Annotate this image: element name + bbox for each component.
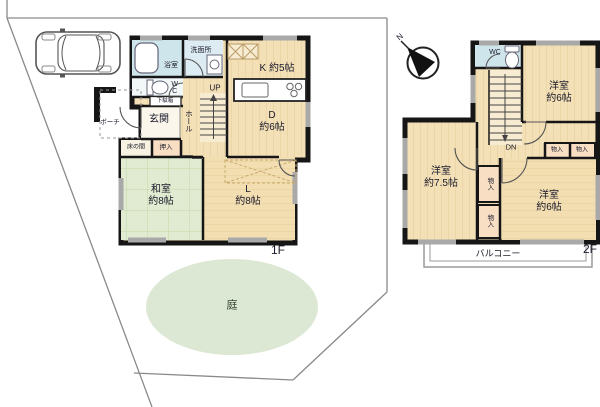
floor1-plan: [94, 36, 311, 244]
washing-machine: [207, 55, 222, 74]
room-tokonoma: [121, 140, 152, 157]
room-oshiire: [152, 140, 181, 157]
garden: [146, 259, 318, 355]
floorplan-drawing: [0, 0, 600, 407]
floorplan-page: 浴室 洗面所 WC 下駄箱 玄関 ホール UP K 約5帖 D 約6帖 押入 床…: [0, 0, 600, 407]
room-washitsu: [121, 157, 203, 240]
kitchen-hanging-cabinet: [228, 44, 258, 59]
kitchen-counter: [234, 79, 306, 101]
toilet-2f: [505, 46, 519, 68]
toilet-1f: [147, 80, 168, 95]
balcony: [424, 242, 592, 267]
bathtub: [135, 43, 158, 73]
room-entrance: [141, 106, 180, 138]
car: [36, 29, 120, 78]
north-compass: [401, 41, 439, 79]
shoe-cabinet-box: [150, 97, 181, 107]
room-bedroom-south: [502, 159, 596, 240]
room-living: [203, 157, 295, 240]
